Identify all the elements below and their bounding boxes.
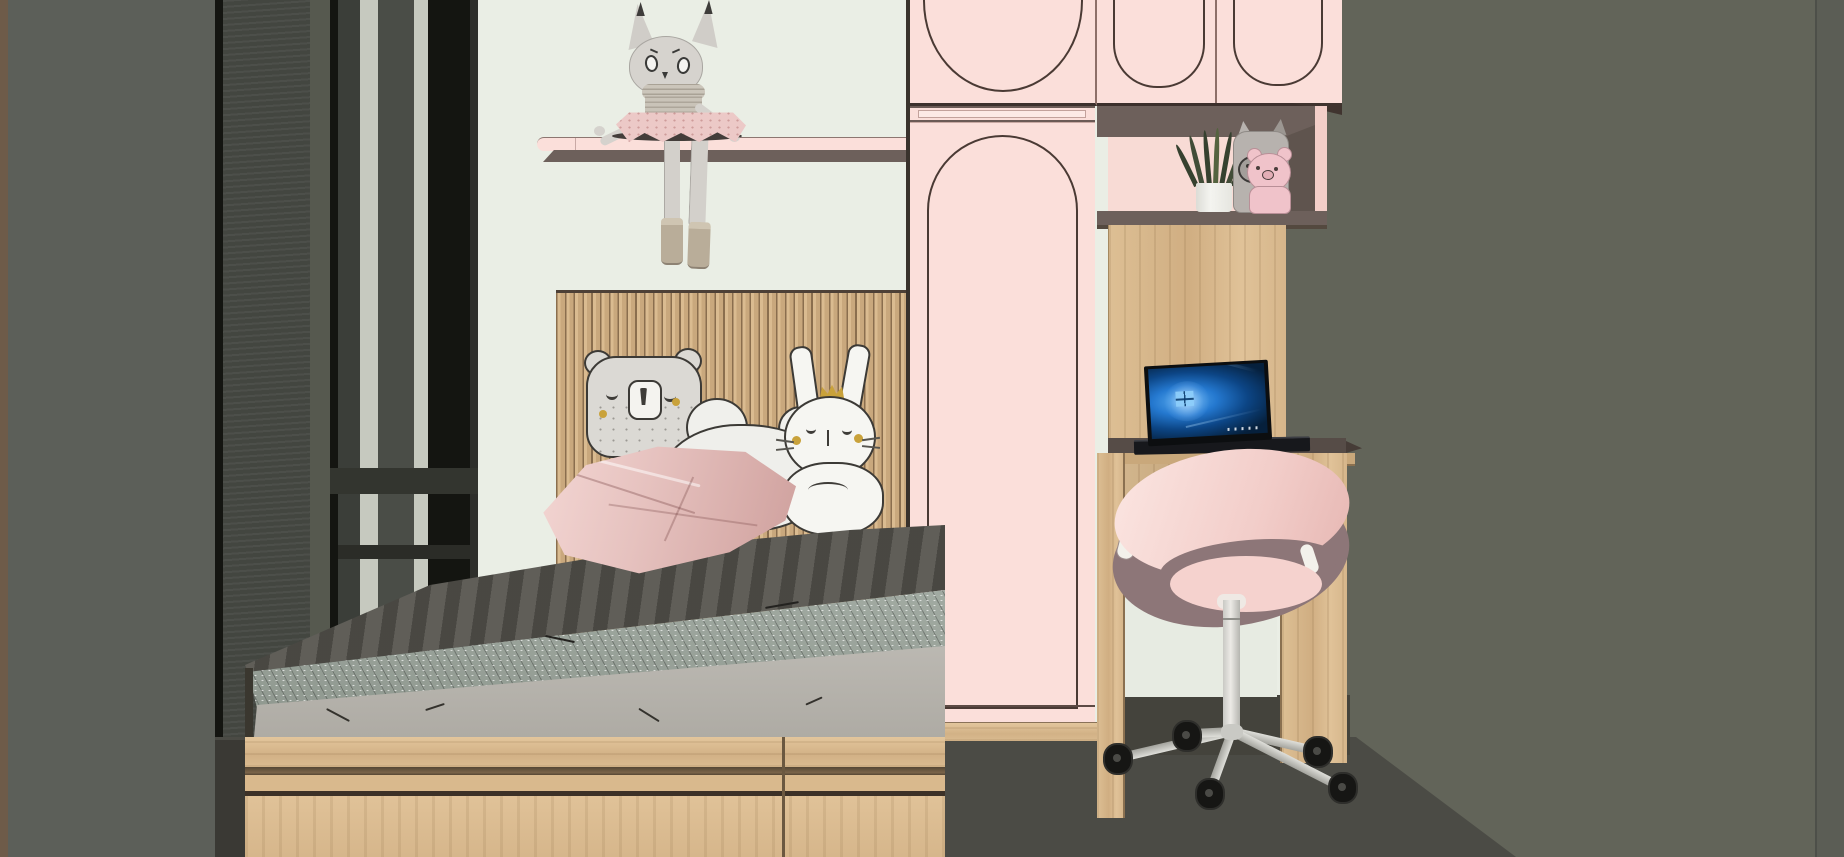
pillow-fold	[609, 504, 758, 527]
caster-hub	[1338, 783, 1346, 791]
chair-seat	[1170, 556, 1322, 612]
overhead-cabinet-arch-left	[1113, 0, 1205, 88]
overhead-cabinets	[1097, 0, 1342, 106]
wardrobe-rail-inset	[918, 110, 1086, 118]
window-sash-bar	[330, 468, 478, 494]
wardrobe-top-cabinet-arch	[923, 0, 1083, 92]
caster-hub	[1113, 754, 1121, 762]
bear-eye-left	[606, 388, 618, 400]
doll-leg-right	[688, 128, 708, 229]
doll-boot-right	[687, 222, 711, 270]
chair-caster	[1172, 720, 1202, 752]
bed-top-rail	[245, 737, 945, 767]
figurine-bear-body	[1249, 186, 1291, 214]
wardrobe-door-arch	[927, 135, 1078, 709]
right-wall	[1285, 0, 1844, 857]
chair-column-joint	[1223, 618, 1240, 620]
window-frame-line	[215, 0, 223, 857]
chair-caster	[1103, 743, 1133, 775]
figurine-bear-eye-right	[1274, 167, 1278, 171]
wall-shelf-underside	[543, 150, 907, 162]
chair-column	[1223, 600, 1240, 734]
wardrobe-rail	[910, 106, 1095, 122]
chair-caster	[1328, 772, 1358, 804]
right-wall-return	[1817, 0, 1844, 857]
left-edge-strip	[0, 0, 8, 857]
pillow-crease	[664, 477, 694, 542]
taskbar-icons	[1227, 426, 1261, 431]
plant-leaf	[1202, 130, 1212, 186]
caster-hub	[1182, 731, 1190, 739]
chair-caster	[1195, 778, 1225, 810]
niche-front-right	[1315, 106, 1327, 225]
bunny-eye-left	[806, 424, 816, 434]
figurine-bear-snout	[1262, 170, 1274, 180]
figurine-bear-eye-left	[1256, 166, 1260, 170]
chair-hub	[1221, 724, 1243, 740]
bed-panel-seam	[782, 737, 785, 857]
windows-logo	[1175, 391, 1194, 407]
overhead-cabinet-divider	[1215, 0, 1217, 103]
caster-hub	[1205, 789, 1213, 797]
bunny-pillow	[780, 344, 894, 532]
bed-mid-rail	[245, 775, 945, 791]
bedroom-render	[0, 0, 1844, 857]
doll-boot-left	[661, 218, 683, 265]
bed	[245, 518, 945, 857]
bunny-nose-line	[827, 430, 829, 446]
wall-shelf-seam	[575, 138, 576, 150]
bear-cheek-left	[599, 410, 607, 418]
overhead-cabinet-arch-right	[1233, 0, 1323, 86]
doll-leg-left	[664, 128, 680, 224]
bunny-paw-line	[808, 482, 848, 498]
laptop-wallpaper	[1148, 363, 1268, 439]
bed-rail-seam	[245, 767, 945, 775]
bed-front-panel	[245, 796, 945, 857]
doll-hand-left	[594, 126, 605, 136]
wardrobe-top-cabinet	[910, 0, 1097, 106]
plant-leaf	[1213, 128, 1220, 186]
niche-bottom-shelf	[1097, 211, 1327, 225]
wallpaper-ray	[1179, 363, 1257, 373]
caster-hub	[1313, 747, 1321, 755]
left-wall	[8, 0, 215, 857]
laptop-screen	[1144, 360, 1272, 447]
bunny-eye-right	[842, 425, 852, 435]
chair-caster	[1303, 736, 1333, 768]
snake-plant-pot	[1196, 183, 1232, 212]
